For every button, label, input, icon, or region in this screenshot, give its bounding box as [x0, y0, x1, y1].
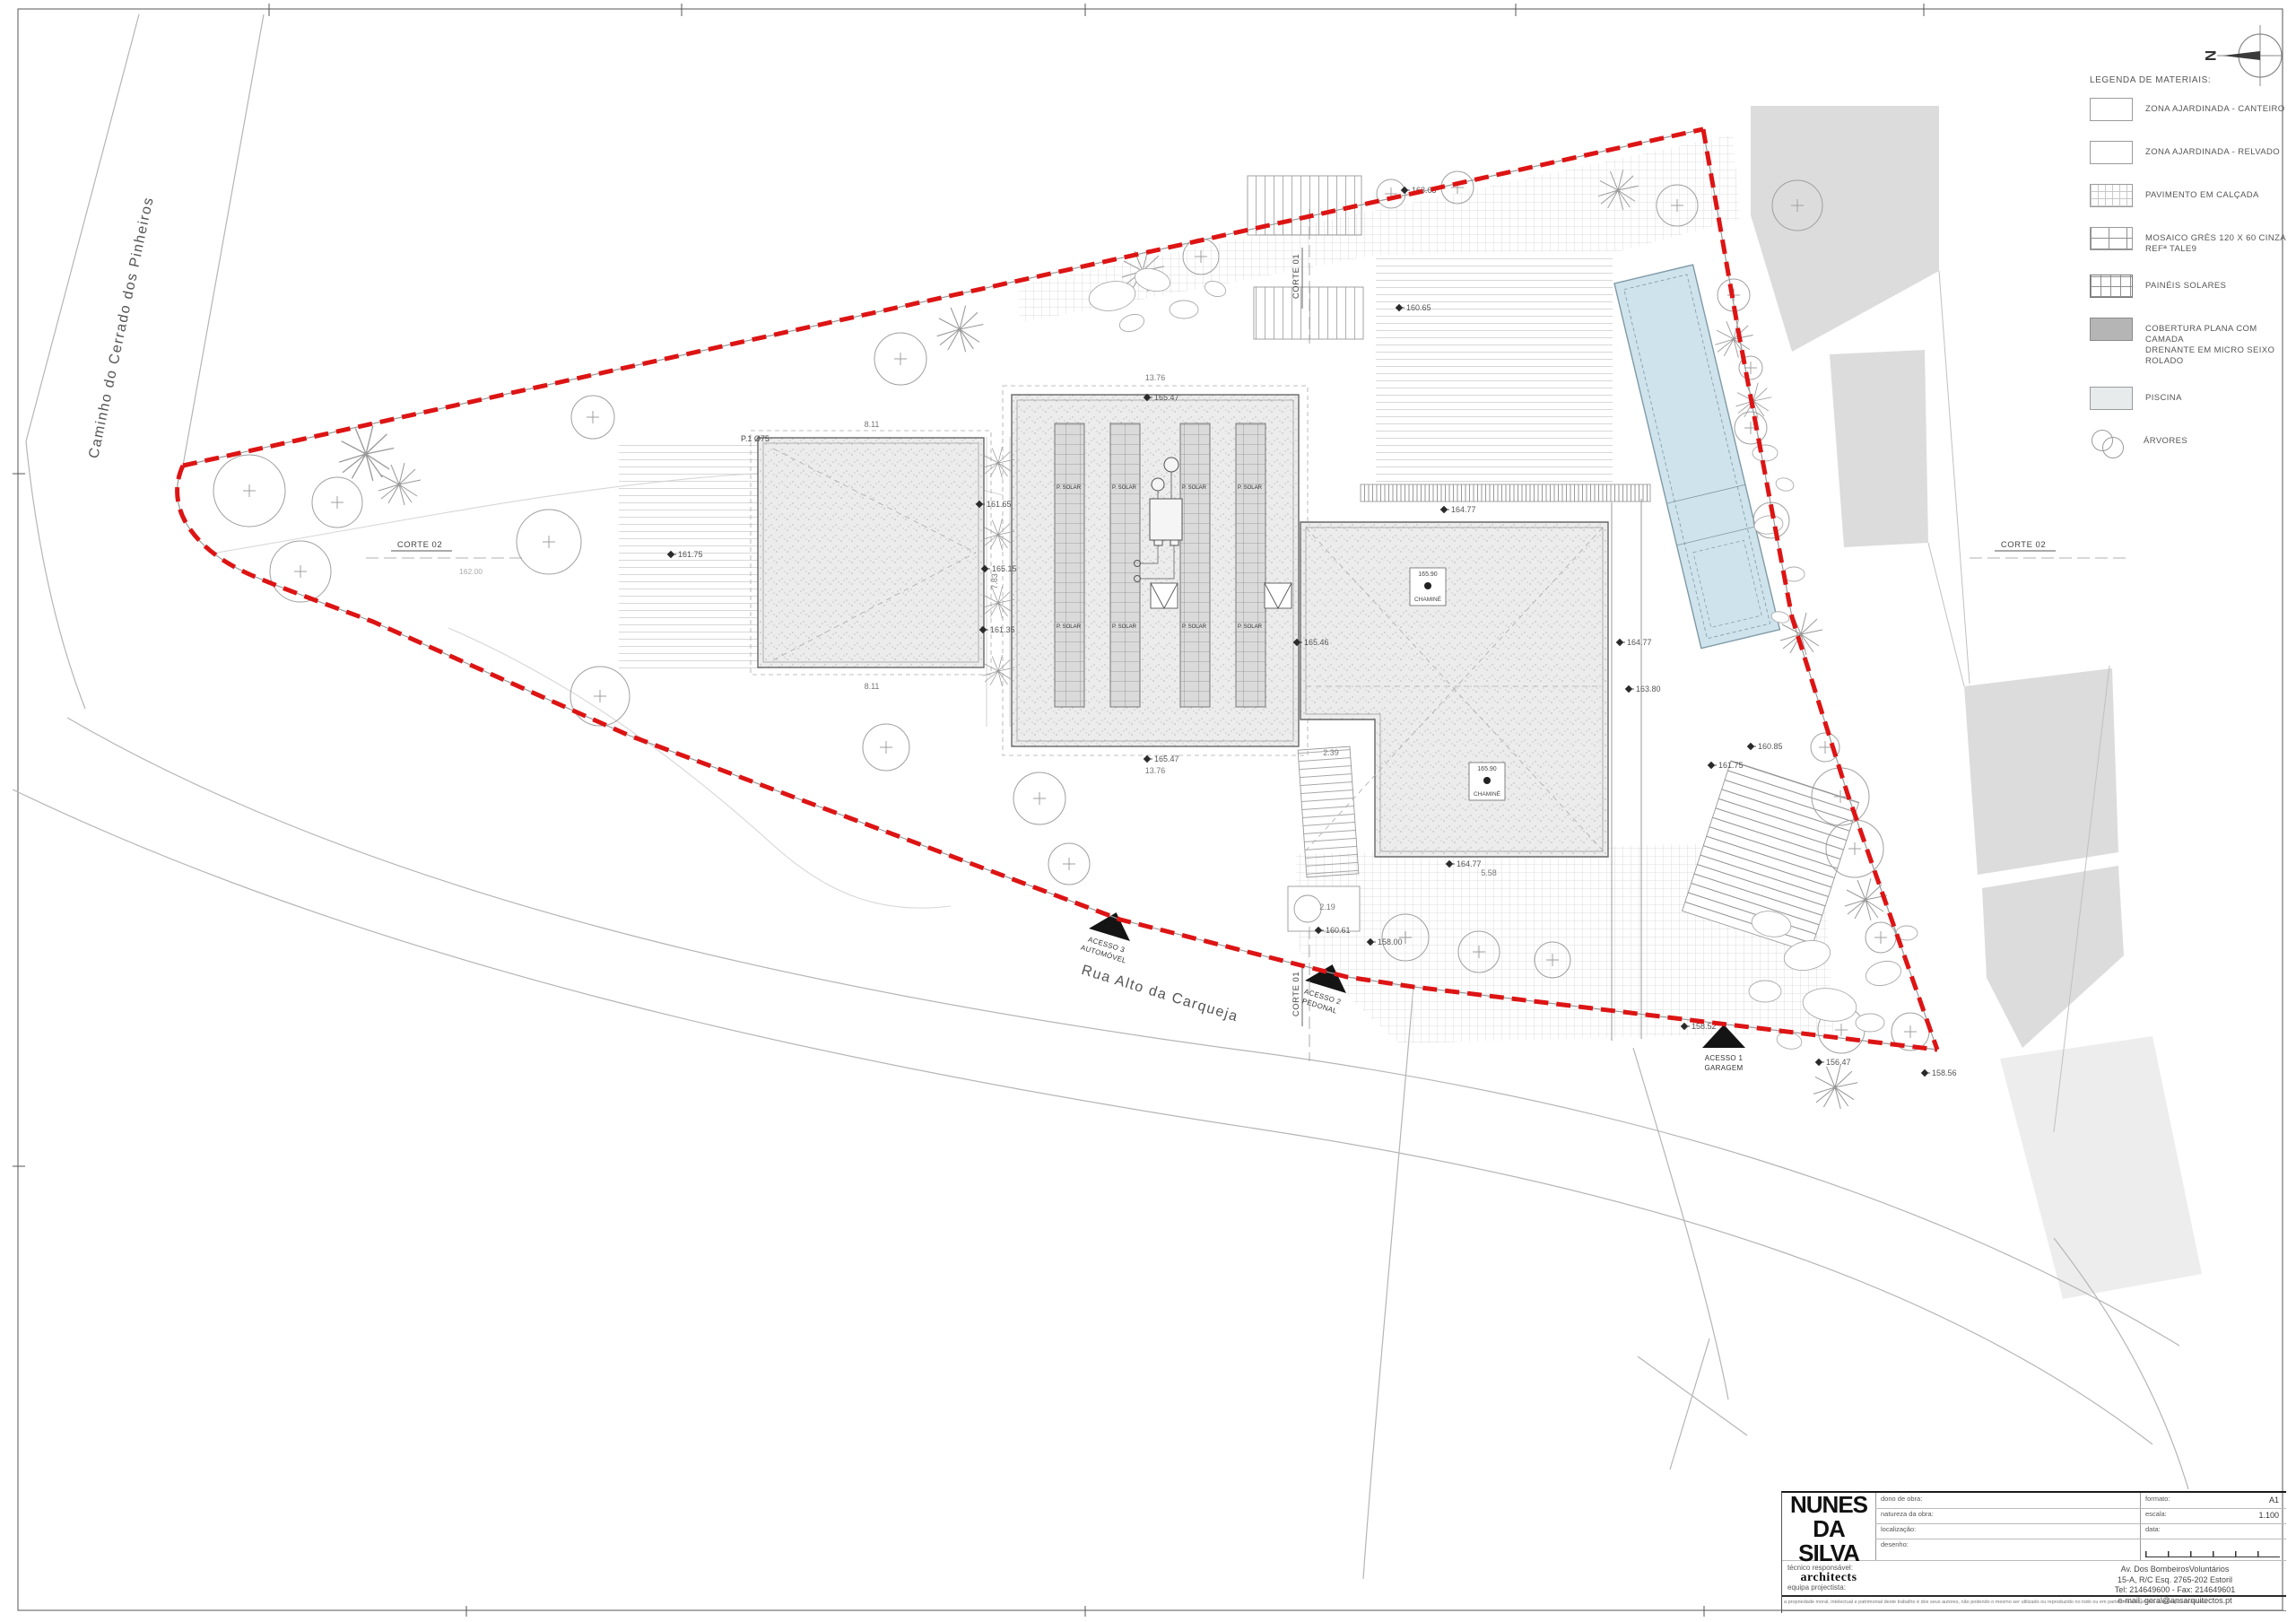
dimension-label: 2.19 — [1319, 903, 1335, 911]
svg-text:CHAMINÉ: CHAMINÉ — [1474, 789, 1501, 798]
legend-swatch-piscina — [2090, 387, 2133, 410]
legend-swatch-relvado — [2090, 141, 2133, 164]
legend-item: PAVIMENTO EM CALÇADA — [2090, 184, 2292, 207]
legend-item-label: PAVIMENTO EM CALÇADA — [2133, 184, 2259, 201]
legend-title: LEGENDA DE MATERIAIS: — [2090, 75, 2292, 85]
tree — [517, 510, 581, 574]
svg-text:156.47: 156.47 — [1826, 1058, 1851, 1067]
rock — [1749, 981, 1781, 1002]
dimension-label: 5.58 — [1481, 868, 1497, 877]
svg-text:CORTE 02: CORTE 02 — [2001, 540, 2046, 550]
svg-text:161.75: 161.75 — [1718, 761, 1744, 770]
legend-item: ZONA AJARDINADA - RELVADO — [2090, 141, 2292, 164]
svg-text:165.47: 165.47 — [1154, 393, 1179, 402]
palm-tree-icon — [937, 306, 984, 353]
spot-elevation: 164.77 — [1440, 505, 1476, 514]
legend-item-label: ZONA AJARDINADA - RELVADO — [2133, 141, 2280, 158]
spot-elevation: 160.85 — [1747, 742, 1783, 751]
address-line: Av. Dos BombeirosVoluntários — [2069, 1565, 2281, 1575]
section-label: CORTE 02 — [366, 540, 527, 558]
rock — [1170, 301, 1198, 318]
legend-item: ZONA AJARDINADA - CANTEIRO — [2090, 98, 2292, 121]
dimension-label: 13.76 — [1145, 766, 1166, 775]
solar-strip: P. SOLARP. SOLAR — [1110, 423, 1140, 707]
stair-house-side — [1298, 746, 1359, 877]
dimension-label: 13.76 — [1145, 373, 1166, 382]
legend-swatch-canteiro — [2090, 98, 2133, 121]
title-block: NUNES DA SILVA architects dono de obra:n… — [1781, 1491, 2286, 1613]
tree — [213, 455, 285, 527]
titleblock-field-label: natureza da obra: — [1881, 1510, 1934, 1518]
palm-tree-icon — [378, 463, 421, 505]
tree — [1865, 922, 1896, 953]
spot-elevation: 164.77 — [1616, 638, 1652, 647]
sheet-frame — [13, 4, 2283, 1617]
street-name: Rua Alto da Carqueja — [1080, 963, 1240, 1025]
solar-strip-label: P. SOLAR — [1182, 485, 1207, 491]
svg-text:165.90: 165.90 — [1477, 766, 1497, 772]
svg-text:CORTE 02: CORTE 02 — [397, 540, 442, 550]
legend-swatch-solar — [2090, 275, 2133, 298]
titleblock-side-label: escala: — [2145, 1510, 2167, 1518]
solar-strip-label: P. SOLAR — [1057, 485, 1082, 491]
spot-elevation: 158.56 — [1921, 1068, 1957, 1077]
palm-tree-icon — [1845, 878, 1887, 920]
svg-text:164.77: 164.77 — [1451, 505, 1476, 514]
tree — [863, 724, 909, 771]
legend-item: PISCINA — [2090, 387, 2292, 410]
svg-text:160.61: 160.61 — [1326, 926, 1351, 935]
site-plan-canvas: P.1 Ø75 P. SOLARP. SOLARP. SOLARP. SOLAR… — [0, 0, 2296, 1622]
rock — [1863, 957, 1903, 989]
legend-item: MOSAICO GRÉS 120 X 60 CINZA REFª TALE9 — [2090, 227, 2292, 255]
svg-text:165.15: 165.15 — [992, 564, 1017, 573]
tree — [1013, 772, 1065, 824]
svg-text:164.77: 164.77 — [1457, 859, 1482, 868]
svg-text:158.00: 158.00 — [1378, 937, 1403, 946]
tree — [571, 396, 614, 439]
tree — [570, 667, 630, 726]
titleblock-side-value: 1.100 — [2258, 1511, 2279, 1520]
solar-strip-label: P. SOLAR — [1182, 624, 1207, 630]
legend-item-label: PISCINA — [2133, 387, 2182, 404]
copyright-note: a propriedade moral, intelectual e patri… — [1784, 1600, 2286, 1605]
logo-line2: DA SILVA — [1782, 1517, 1875, 1565]
legend-swatch-cobertura — [2090, 318, 2133, 341]
address-line: Tel: 214649600 - Fax: 214649601 — [2069, 1585, 2281, 1596]
rock — [1775, 476, 1796, 493]
svg-text:163.80: 163.80 — [1636, 685, 1661, 693]
solar-strip: P. SOLARP. SOLAR — [1180, 423, 1210, 707]
rock — [1856, 1014, 1884, 1032]
tree — [1377, 179, 1405, 208]
section-label: CORTE 02 — [1970, 540, 2131, 558]
dimension-label: 2.39 — [1323, 748, 1339, 757]
legend-item-label: PAINÉIS SOLARES — [2133, 275, 2226, 292]
pipe-label: P.1 Ø75 — [741, 434, 770, 443]
solar-strip: P. SOLARP. SOLAR — [1236, 423, 1265, 707]
svg-text:161.65: 161.65 — [987, 500, 1012, 509]
solar-strip-label: P. SOLAR — [1238, 624, 1263, 630]
solar-strip-label: P. SOLAR — [1057, 624, 1082, 630]
svg-text:160.65: 160.65 — [1406, 303, 1431, 312]
svg-text:161.35: 161.35 — [990, 625, 1015, 634]
legend-item-label: COBERTURA PLANA COM CAMADA DRENANTE EM M… — [2133, 318, 2292, 367]
spot-elevation: 161.75 — [1708, 761, 1744, 770]
titleblock-field-label: localização: — [1881, 1525, 1916, 1533]
rock — [1752, 445, 1778, 461]
svg-text:CORTE 01: CORTE 01 — [1291, 254, 1301, 299]
building-main — [1300, 522, 1608, 857]
svg-text:GARAGEM: GARAGEM — [1705, 1064, 1744, 1072]
legend-item-label: ÁRVORES — [2131, 430, 2187, 447]
svg-text:ACESSO 1: ACESSO 1 — [1705, 1054, 1744, 1062]
solar-strip-label: P. SOLAR — [1112, 624, 1137, 630]
palm-tree-icon — [1715, 319, 1752, 357]
svg-text:158.56: 158.56 — [1932, 1068, 1957, 1077]
palm-tree-icon — [339, 426, 394, 481]
legend-item: COBERTURA PLANA COM CAMADA DRENANTE EM M… — [2090, 318, 2292, 367]
solar-strip: P. SOLARP. SOLAR — [1055, 423, 1084, 707]
svg-text:164.77: 164.77 — [1627, 638, 1652, 647]
legend-swatch-arvores — [2090, 430, 2131, 457]
equipa-label: equipa projectista: — [1787, 1583, 1846, 1591]
tree — [1735, 412, 1767, 444]
tree — [1048, 843, 1090, 885]
tree — [874, 333, 926, 385]
titleblock-field-label: desenho: — [1881, 1540, 1909, 1548]
logo-line1: NUNES — [1782, 1493, 1875, 1517]
spot-elevation: 156.47 — [1815, 1058, 1851, 1067]
spot-elevation: 161.35 — [979, 625, 1015, 634]
tree — [312, 477, 362, 528]
stair-courtyard — [1254, 287, 1363, 339]
spot-elevation: 165.47 — [1144, 754, 1179, 763]
address-line: 15-A, R/C Esq. 2765-202 Estoril — [2069, 1575, 2281, 1586]
titleblock-field-label: dono de obra: — [1881, 1495, 1922, 1503]
deck-pool-side — [1376, 255, 1613, 484]
tecnico-label: técnico responsável: — [1787, 1564, 1853, 1572]
legend-item-label: ZONA AJARDINADA - CANTEIRO — [2133, 98, 2285, 115]
svg-text:165.46: 165.46 — [1304, 638, 1329, 647]
street-name: Caminho do Cerrado dos Pinheiros — [86, 196, 157, 460]
legend-swatch-mosaico — [2090, 227, 2133, 250]
titleblock-side-label: formato: — [2145, 1495, 2170, 1503]
materials-legend: LEGENDA DE MATERIAIS: ZONA AJARDINADA - … — [2090, 75, 2292, 476]
tree — [270, 541, 331, 602]
svg-text:165.90: 165.90 — [1418, 571, 1438, 578]
svg-text:CORTE 01: CORTE 01 — [1291, 972, 1301, 1016]
legend-item: ÁRVORES — [2090, 430, 2292, 457]
solar-strip-label: P. SOLAR — [1238, 485, 1263, 491]
titleblock-side-value: A1 — [2269, 1496, 2279, 1504]
contour-label: 162.00 — [459, 567, 483, 576]
legend-swatch-calcada — [2090, 184, 2133, 207]
north-label: N — [2202, 50, 2219, 61]
building-garage — [751, 431, 991, 675]
spot-elevation: 163.80 — [1625, 685, 1661, 693]
legend-item-label: MOSAICO GRÉS 120 X 60 CINZA REFª TALE9 — [2133, 227, 2292, 255]
legend-item: PAINÉIS SOLARES — [2090, 275, 2292, 298]
titleblock-side-label: data: — [2145, 1525, 2161, 1533]
pergola — [1361, 484, 1650, 501]
dimension-label: 7.83 — [990, 573, 999, 589]
svg-text:CHAMINÉ: CHAMINÉ — [1414, 595, 1442, 603]
graphic-scale-bar — [2145, 1548, 2280, 1557]
dimension-label: 8.11 — [865, 420, 880, 429]
dimension-label: 8.11 — [865, 682, 880, 691]
svg-text:161.75: 161.75 — [678, 550, 703, 559]
palm-tree-icon — [1813, 1065, 1857, 1109]
svg-text:165.47: 165.47 — [1154, 754, 1179, 763]
solar-strip-label: P. SOLAR — [1112, 485, 1137, 491]
drawing-sheet: P.1 Ø75 P. SOLARP. SOLARP. SOLARP. SOLAR… — [0, 0, 2296, 1622]
svg-text:160.85: 160.85 — [1758, 742, 1783, 751]
rock — [1118, 311, 1146, 335]
